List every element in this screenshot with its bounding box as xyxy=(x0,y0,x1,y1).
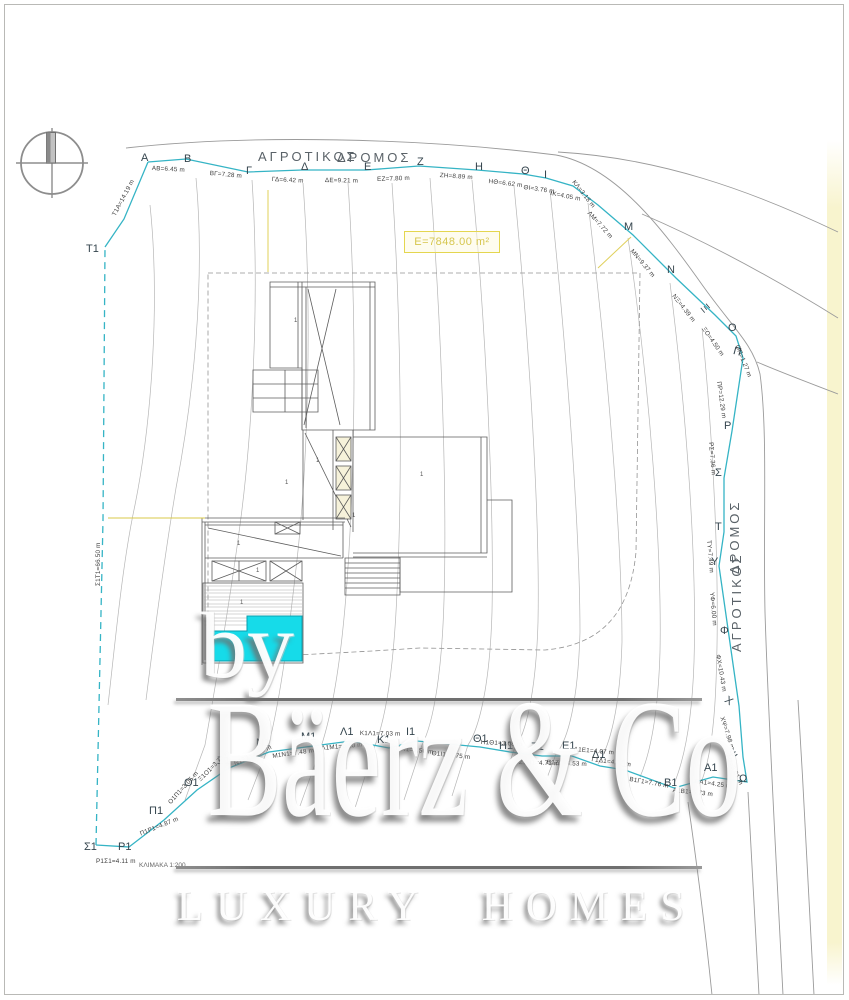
elevation-mark-1: 1 xyxy=(316,458,319,464)
point-label-Α: Α xyxy=(141,152,148,164)
elevation-mark-1: 1 xyxy=(352,513,355,519)
scale-label: ΚΛΙΜΑΚΑ 1:200 xyxy=(139,862,186,869)
point-label-Ζ: Ζ xyxy=(417,156,424,168)
elevation-mark-1: 1 xyxy=(294,318,297,324)
measurement-label-ΝΞ=4.39 m: ΝΞ=4.39 m xyxy=(670,293,696,324)
point-label-Γ: Γ xyxy=(246,165,252,177)
measurement-label-ΞΟ=4.50 m: ΞΟ=4.50 m xyxy=(700,326,725,358)
parcel-area-label: Ε=7848.00 m² xyxy=(404,231,500,253)
point-label-Ι: Ι xyxy=(544,169,547,181)
labels-layer: ΑΓΡΟΤΙΚΟΣ ΔΡΟΜΟΣ ΔΡΟΜΟΣ ΑΓΡΟΤΙΚΟΣ ΑΒΓΔΕΖ… xyxy=(0,0,849,1000)
road-label-right-agrotikos: ΑΓΡΟΤΙΚΟΣ xyxy=(729,552,744,652)
measurement-label-Η1Θ1=3.08 m: Η1Θ1=3.08 m xyxy=(481,739,523,748)
measurement-label-Θ1Ι1=8.75 m: Θ1Ι1=8.75 m xyxy=(431,750,470,761)
point-label-Β: Β xyxy=(184,153,191,165)
measurement-label-ΤΥ=7.49 m: ΤΥ=7.49 m xyxy=(705,540,715,573)
point-label-Π1: Π1 xyxy=(149,805,163,817)
measurement-label-ΟΠ=1.27 m: ΟΠ=1.27 m xyxy=(734,344,753,378)
measurement-label-Ν1Ξ1=4.08 m: Ν1Ξ1=4.08 m xyxy=(233,744,273,768)
point-label-Ι1: Ι1 xyxy=(406,726,415,738)
elevation-mark-1: 1 xyxy=(240,600,243,606)
measurement-label-Ι1Κ1=3.50 m: Ι1Κ1=3.50 m xyxy=(395,745,434,756)
point-label-Μ1: Μ1 xyxy=(301,731,316,743)
elevation-mark-1: 1 xyxy=(420,472,423,478)
elevation-mark-1: 1 xyxy=(237,541,240,547)
point-label-Ξ: Ξ xyxy=(698,302,712,315)
point-label-Η: Η xyxy=(475,161,483,173)
measurement-label-Λ1Μ1=6.10 m: Λ1Μ1=6.10 m xyxy=(321,741,363,752)
point-label-Α1: Α1 xyxy=(704,762,717,774)
road-label-top-dromos: ΔΡΟΜΟΣ xyxy=(337,150,411,165)
measurement-label-ΧΨ=7.98 m: ΧΨ=7.98 m xyxy=(718,716,735,751)
measurement-label-Τ1Α=14.19 m: Τ1Α=14.19 m xyxy=(111,179,136,218)
elevation-mark-1: 1 xyxy=(256,568,259,574)
measurement-label-ΥΦ=6.00 m: ΥΦ=6.00 m xyxy=(708,592,718,626)
measurement-label-ΛΜ=7.72 m: ΛΜ=7.72 m xyxy=(586,210,614,240)
measurement-label-ΡΣ=7.36 m: ΡΣ=7.36 m xyxy=(707,442,717,475)
point-label-Μ: Μ xyxy=(624,221,633,233)
measurement-label-Κ1Λ1=7.03 m: Κ1Λ1=7.03 m xyxy=(360,730,401,738)
measurement-label-ΔΕ=9.21 m: ΔΕ=9.21 m xyxy=(325,177,358,185)
point-label-Χ: Χ xyxy=(722,694,735,708)
point-label-Φ: Φ xyxy=(720,625,729,637)
point-label-Ρ: Ρ xyxy=(724,420,731,432)
point-label-Ο: Ο xyxy=(728,322,737,334)
measurement-label-ΒΓ=7.28 m: ΒΓ=7.28 m xyxy=(209,170,242,180)
point-label-Λ1: Λ1 xyxy=(340,726,353,738)
measurement-label-Ζ1Η1=4.73 m: Ζ1Η1=4.73 m xyxy=(519,759,560,767)
measurement-label-Σ1Τ1=66.50 m: Σ1Τ1=66.50 m xyxy=(95,542,102,586)
point-label-Σ1: Σ1 xyxy=(84,841,97,853)
point-label-Θ: Θ xyxy=(521,165,530,177)
measurement-label-ΕΖ=7.80 m: ΕΖ=7.80 m xyxy=(377,175,410,183)
measurement-label-ΗΘ=6.62 m: ΗΘ=6.62 m xyxy=(488,178,523,189)
point-label-Ε: Ε xyxy=(364,161,371,173)
measurement-label-ΠΡ=12.29 m: ΠΡ=12.29 m xyxy=(715,381,727,419)
point-label-Τ: Τ xyxy=(715,521,722,533)
measurement-label-Μ1Ν1=7.48 m: Μ1Ν1=7.48 m xyxy=(272,747,315,760)
measurement-label-ΑΒ=6.45 m: ΑΒ=6.45 m xyxy=(152,165,185,174)
elevation-mark-1: 1 xyxy=(285,480,288,486)
point-label-Τ1: Τ1 xyxy=(86,243,99,255)
point-label-Ν: Ν xyxy=(667,264,675,276)
measurement-label-ΜΝ=9.37 m: ΜΝ=9.37 m xyxy=(629,248,657,279)
measurement-label-ΓΔ=6.42 m: ΓΔ=6.42 m xyxy=(272,176,304,185)
measurement-label-Ρ1Σ1=4.11 m: Ρ1Σ1=4.11 m xyxy=(96,858,136,865)
point-label-Δ: Δ xyxy=(301,161,308,173)
point-label-Ζ1: Ζ1 xyxy=(531,741,544,753)
measurement-label-ΖΗ=8.89 m: ΖΗ=8.89 m xyxy=(440,172,474,181)
point-label-Ρ1: Ρ1 xyxy=(118,841,131,853)
site-plan-page: ΑΓΡΟΤΙΚΟΣ ΔΡΟΜΟΣ ΔΡΟΜΟΣ ΑΓΡΟΤΙΚΟΣ ΑΒΓΔΕΖ… xyxy=(0,0,849,1000)
measurement-label-Π1Ρ1=4.87 m: Π1Ρ1=4.87 m xyxy=(139,816,180,838)
measurement-label-Α1Β1=5.73 m: Α1Β1=5.73 m xyxy=(672,787,713,798)
measurement-label-ΩΑ1=4.25 m: ΩΑ1=4.25 m xyxy=(694,778,732,790)
measurement-label-ΦΧ=10.43 m: ΦΧ=10.43 m xyxy=(714,654,727,692)
